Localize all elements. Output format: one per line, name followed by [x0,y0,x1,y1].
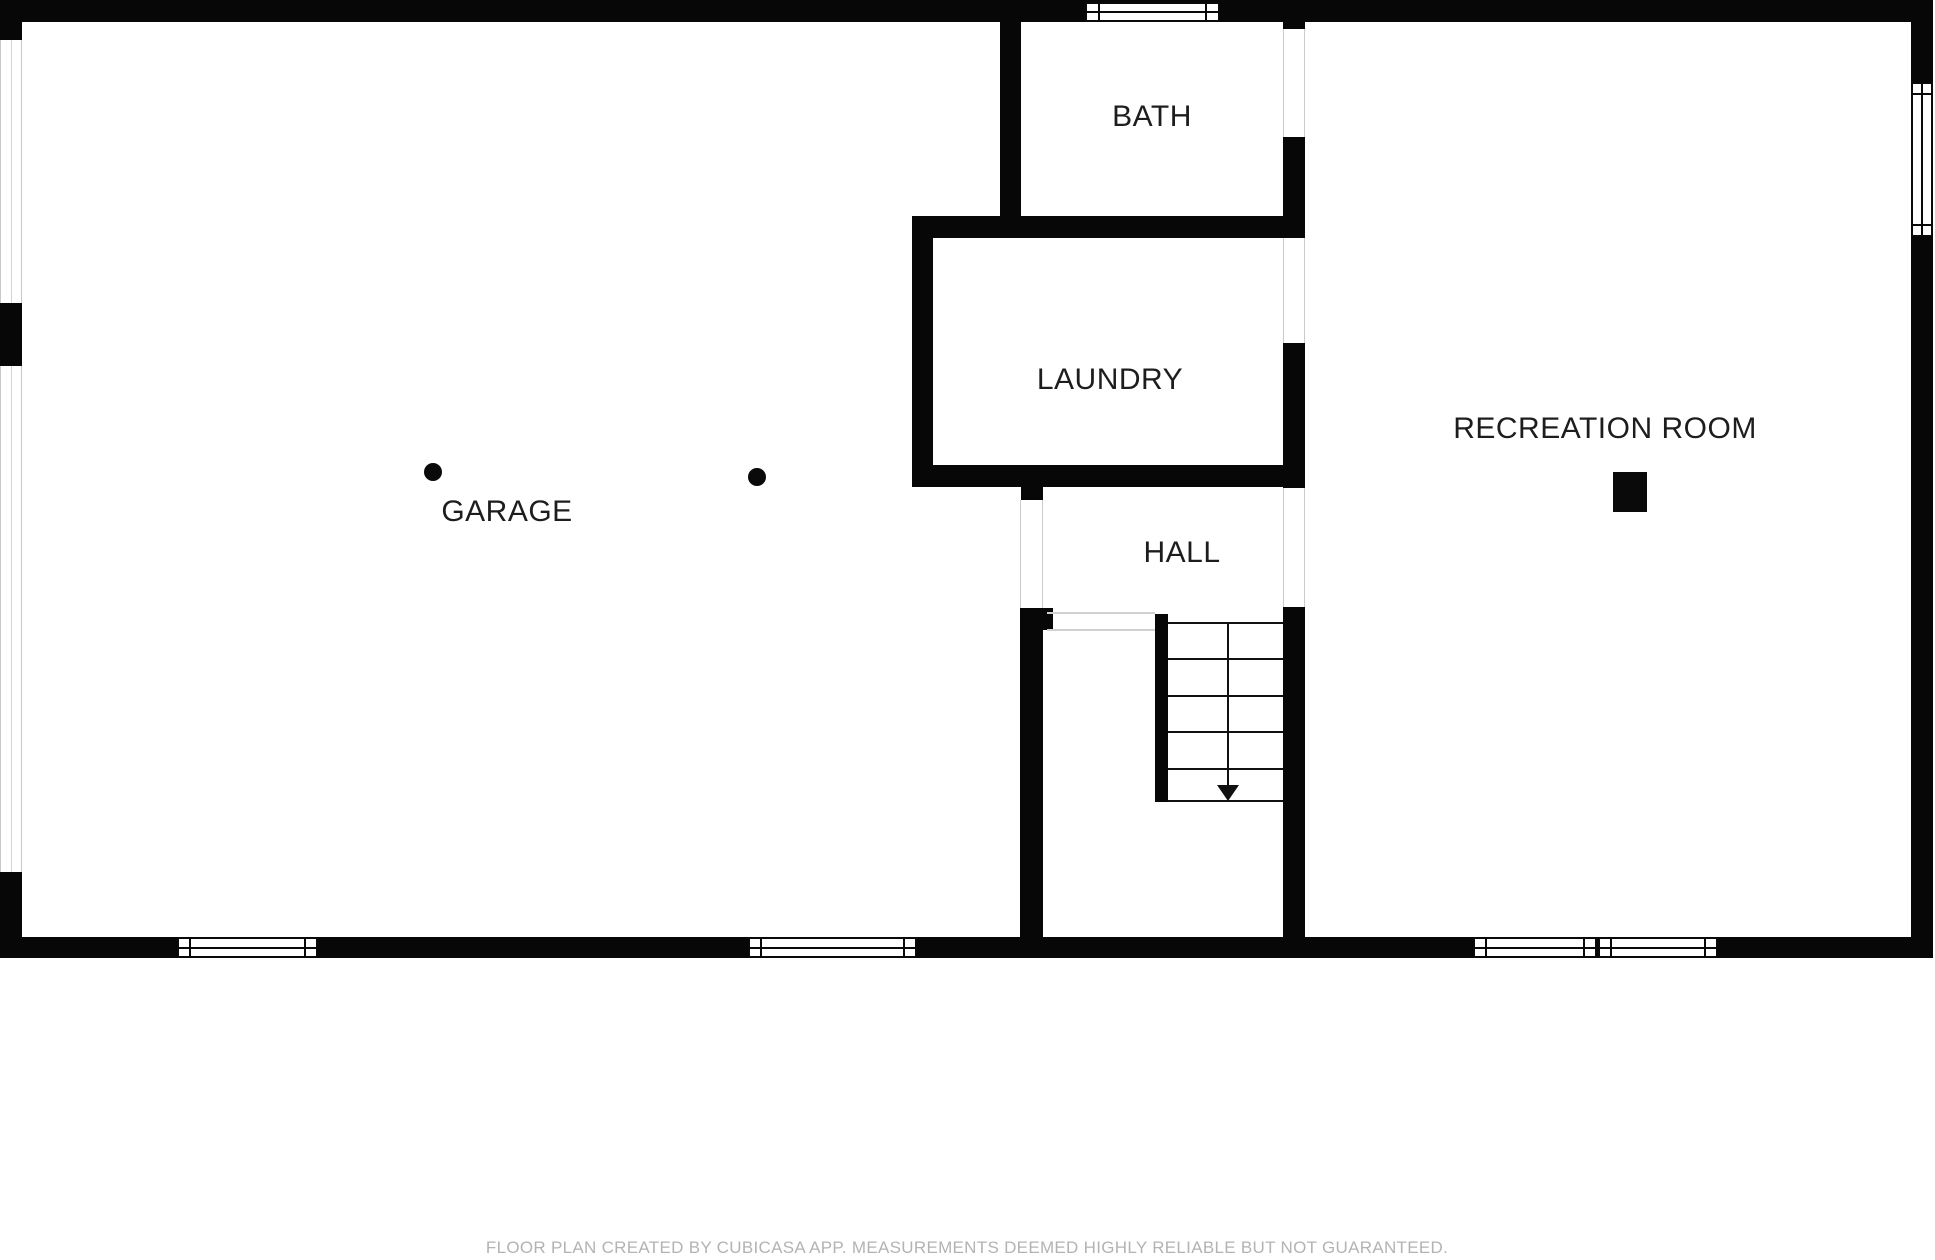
wall-hall-door-stub [1021,487,1043,500]
stair-down-arrow-icon [1217,785,1239,801]
room-label-laundry: LAUNDRY [1037,363,1183,397]
hall-threshold-line-bottom [1047,629,1155,631]
window-frame-line [179,947,316,949]
window-frame-line [750,947,915,949]
wall-stair-side [1155,614,1168,802]
wall-laundry-bottom [912,465,1305,487]
window-frame-line [1921,84,1923,235]
wall-exterior-right-lower [1911,237,1933,958]
door-opening-hall-recreation [1283,488,1305,607]
wall-recreation-divider-seg2 [1283,137,1305,238]
garage-column-dot-right [748,468,766,486]
window-frame-line [1475,947,1595,949]
footer-disclaimer: FLOOR PLAN CREATED BY CUBICASA APP. MEAS… [486,1238,1448,1258]
window-recreation-bottom-right [1598,937,1718,958]
opening-frame-line [11,40,12,303]
opening-garage-left-upper [0,40,22,303]
wall-laundry-left [912,238,933,487]
opening-frame-line [11,366,12,872]
door-opening-bath-recreation [1283,29,1305,137]
wall-recreation-divider-seg3 [1283,343,1305,488]
window-frame-line [1087,11,1218,13]
staircase [1168,622,1283,802]
wall-recreation-divider-seg1 [1283,22,1305,29]
wall-bath-left [1000,22,1021,238]
recreation-room-column [1613,472,1647,512]
hall-threshold-line-top [1047,612,1155,614]
window-recreation-bottom-left [1473,937,1597,958]
floor-plan: GARAGE BATH LAUNDRY HALL RECREATION ROOM… [0,0,1935,1260]
stair-tread-line [1168,695,1283,697]
stair-tread-line [1168,658,1283,660]
stair-tread-line [1168,768,1283,770]
door-opening-laundry-recreation [1283,238,1305,343]
wall-bath-laundry-divider [912,216,1305,238]
window-bath-top [1085,2,1220,22]
stair-direction-line [1227,622,1229,785]
wall-exterior-top [0,0,1933,22]
wall-exterior-left-upper [0,0,22,40]
stair-tread-line [1168,731,1283,733]
room-label-hall: HALL [1143,536,1220,570]
room-label-bath: BATH [1112,100,1192,134]
room-label-garage: GARAGE [441,495,572,529]
opening-garage-left-lower [0,366,22,872]
wall-exterior-left-middle [0,303,22,366]
wall-garage-hall-divider [1020,608,1043,937]
wall-recreation-divider-seg4 [1283,607,1305,937]
room-label-recreation-room: RECREATION ROOM [1453,412,1757,446]
window-garage-bottom-left [177,937,318,958]
window-recreation-right [1911,82,1933,237]
garage-column-dot-left [424,463,442,481]
door-opening-garage-hall [1020,500,1043,608]
window-frame-line [1600,947,1716,949]
window-garage-bottom-right [748,937,917,958]
wall-exterior-right-upper [1911,0,1933,82]
